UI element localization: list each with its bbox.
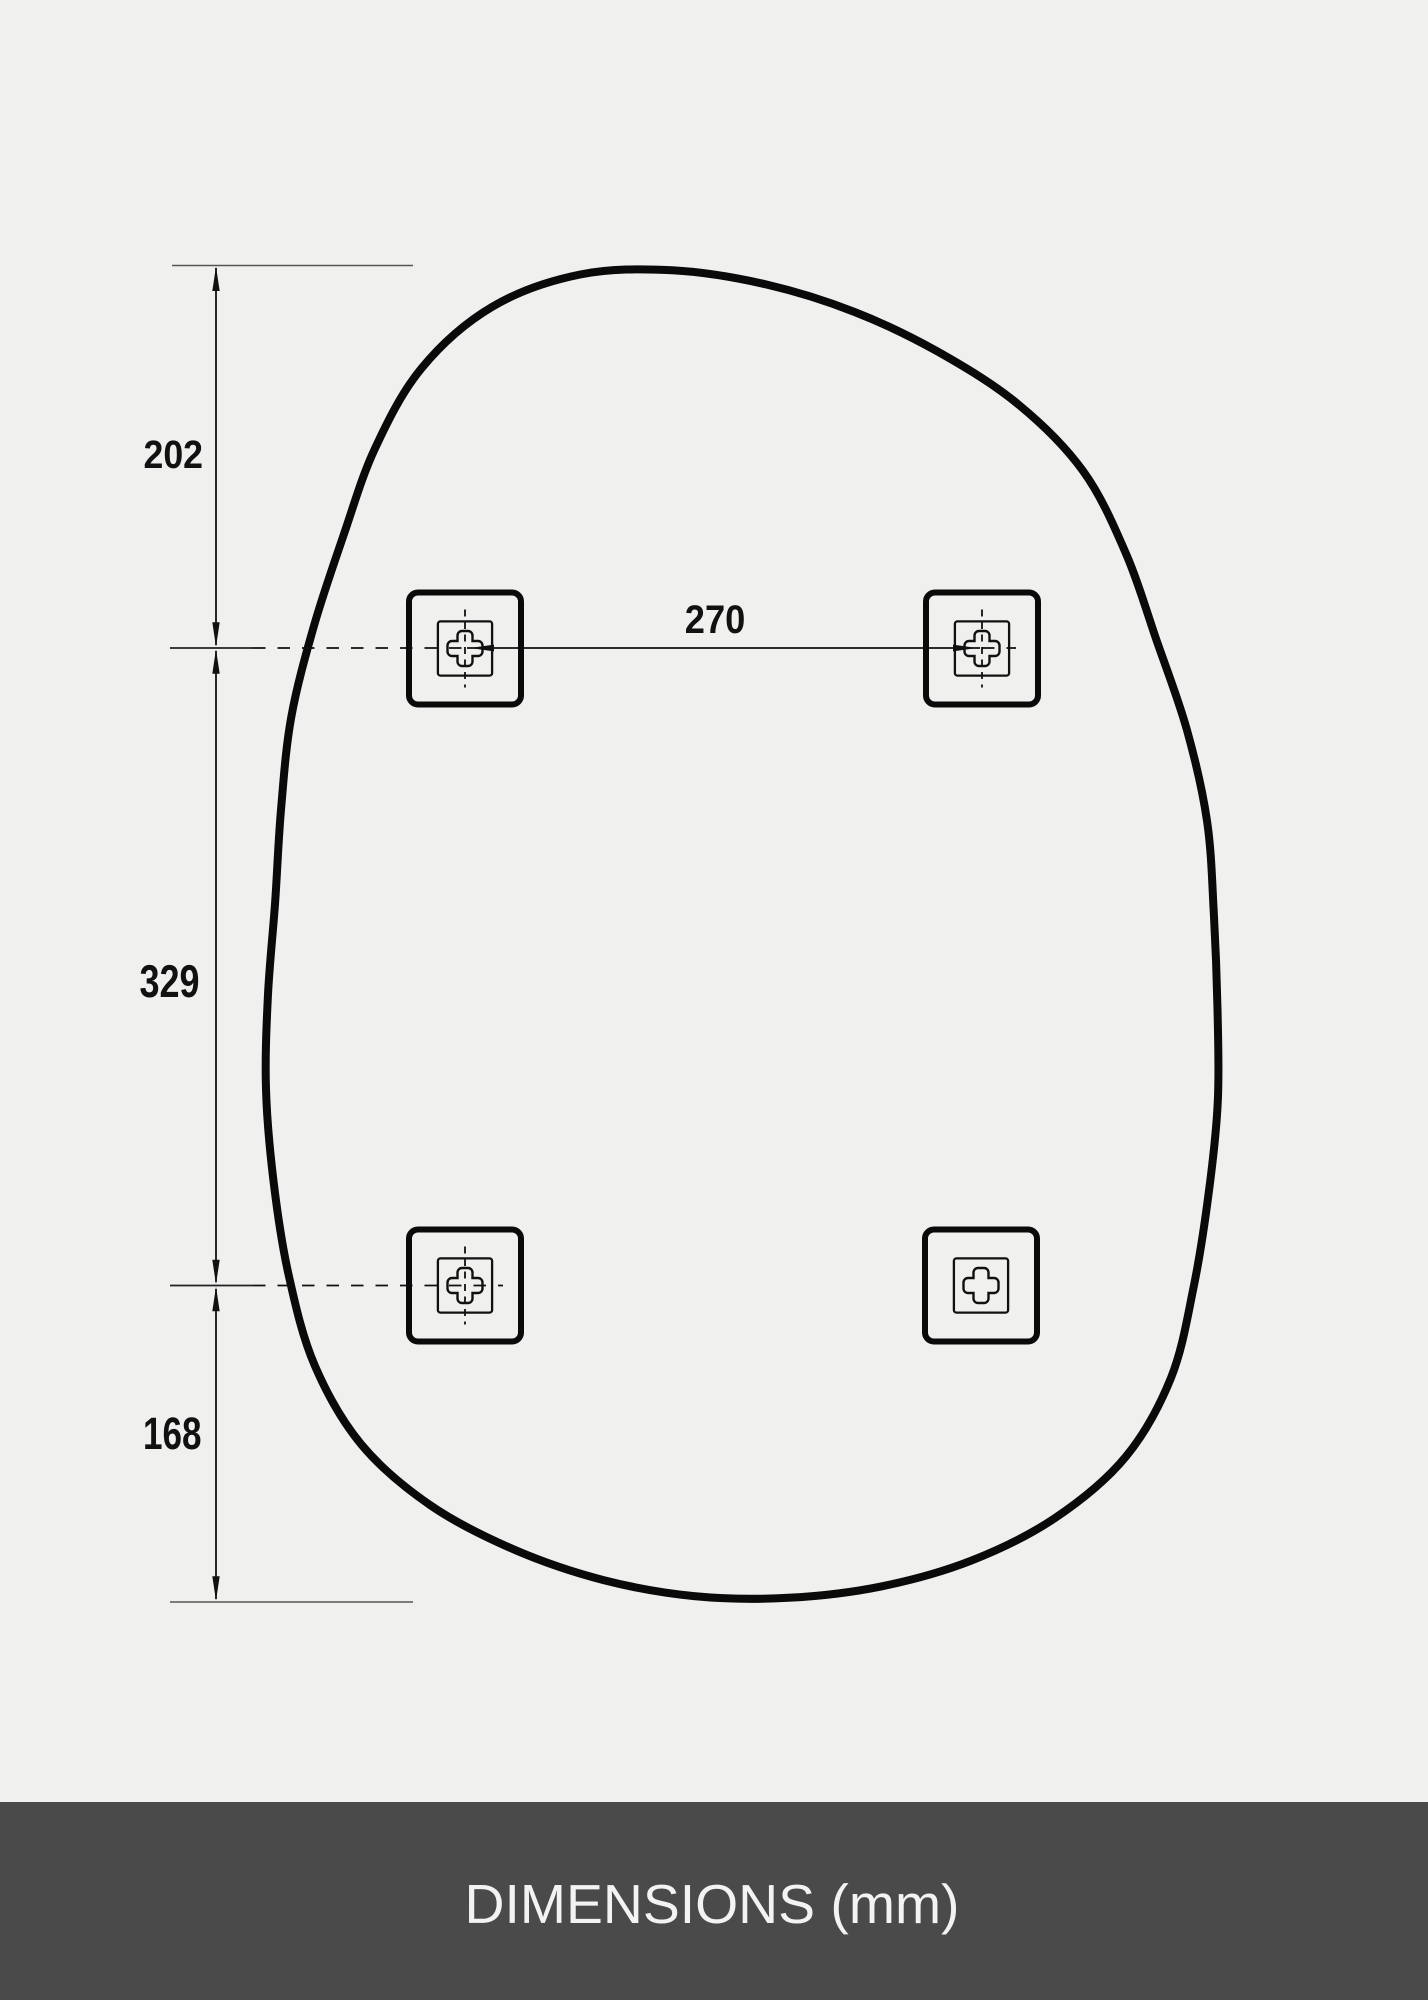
svg-text:329: 329 — [139, 955, 199, 1007]
svg-text:168: 168 — [143, 1408, 202, 1459]
svg-text:202: 202 — [143, 433, 203, 477]
svg-text:DIMENSIONS (mm): DIMENSIONS (mm) — [464, 1873, 959, 1935]
svg-text:270: 270 — [685, 598, 746, 642]
